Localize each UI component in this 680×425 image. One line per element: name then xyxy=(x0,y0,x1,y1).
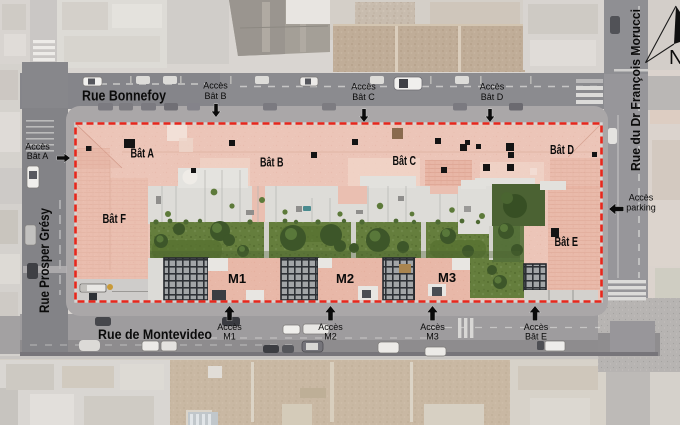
svg-text:Bât C: Bât C xyxy=(393,153,417,168)
svg-text:Rue de Montevideo: Rue de Montevideo xyxy=(98,326,212,342)
svg-text:Accès: Accès xyxy=(217,322,242,332)
svg-text:Bât A: Bât A xyxy=(131,146,155,161)
svg-text:parking: parking xyxy=(626,203,656,213)
svg-text:Bât E: Bât E xyxy=(525,332,547,342)
svg-text:Bât C: Bât C xyxy=(352,92,375,102)
svg-text:Bât D: Bât D xyxy=(550,142,574,157)
svg-text:Accès: Accès xyxy=(524,322,549,332)
svg-text:Accès: Accès xyxy=(420,322,445,332)
svg-text:Accès: Accès xyxy=(351,82,376,92)
svg-text:Bât D: Bât D xyxy=(481,92,504,102)
svg-text:Accès: Accès xyxy=(203,81,228,91)
svg-text:Accès: Accès xyxy=(629,193,654,203)
svg-text:Rue Bonnefoy: Rue Bonnefoy xyxy=(82,88,167,105)
svg-text:Rue du Dr François Morucci: Rue du Dr François Morucci xyxy=(628,9,643,171)
svg-text:Bât E: Bât E xyxy=(555,234,579,249)
svg-text:N: N xyxy=(669,47,680,69)
svg-text:Rue Prosper Grésy: Rue Prosper Grésy xyxy=(36,208,52,313)
svg-text:Bât A: Bât A xyxy=(27,151,49,161)
svg-text:Bât F: Bât F xyxy=(103,211,127,226)
svg-text:M3: M3 xyxy=(426,332,439,342)
svg-text:M3: M3 xyxy=(438,270,456,285)
svg-text:Bât B: Bât B xyxy=(260,154,284,169)
svg-text:Accès: Accès xyxy=(480,82,505,92)
svg-text:M2: M2 xyxy=(336,271,354,286)
svg-text:M2: M2 xyxy=(324,332,337,342)
svg-text:M1: M1 xyxy=(223,332,236,342)
svg-text:Bât B: Bât B xyxy=(204,91,226,101)
svg-text:Accès: Accès xyxy=(318,322,343,332)
svg-text:M1: M1 xyxy=(228,271,246,286)
svg-text:Accès: Accès xyxy=(25,142,50,152)
